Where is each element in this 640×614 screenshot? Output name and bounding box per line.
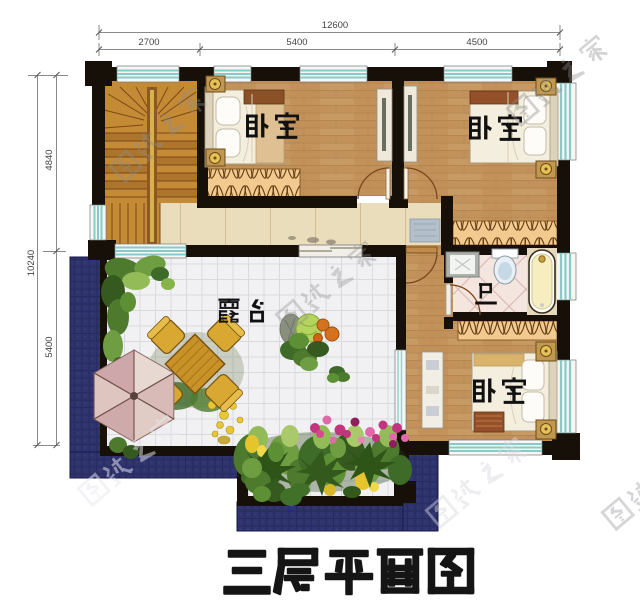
svg-text:5400: 5400	[286, 37, 307, 48]
svg-text:2700: 2700	[138, 37, 159, 48]
svg-text:10240: 10240	[26, 250, 37, 276]
svg-text:4840: 4840	[44, 149, 55, 170]
svg-text:5400: 5400	[44, 336, 55, 357]
svg-text:12600: 12600	[322, 20, 348, 31]
svg-text:4500: 4500	[466, 37, 487, 48]
